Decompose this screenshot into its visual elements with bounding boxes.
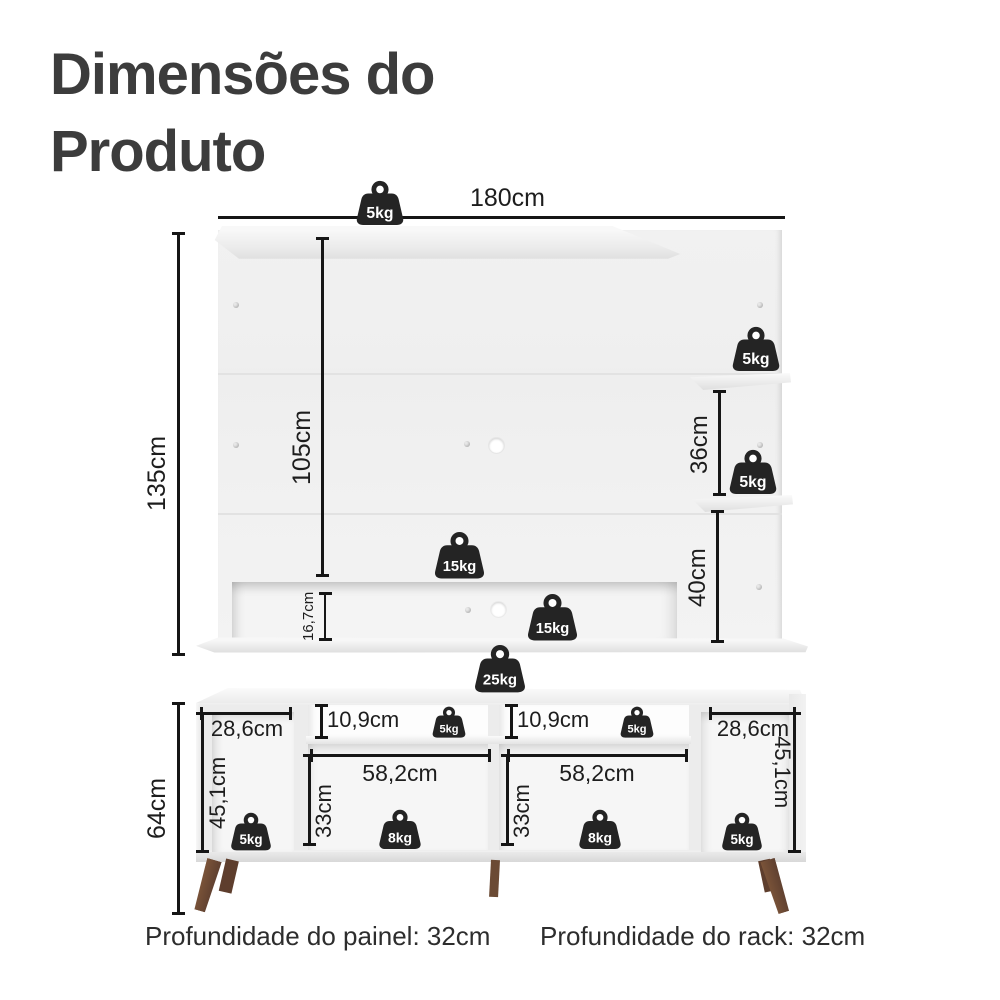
rack-top-niche-left-label: 10,9cm: [327, 707, 399, 733]
svg-text:5kg: 5kg: [739, 474, 766, 491]
screw-dot: [465, 607, 471, 613]
niche-height-dimension-line: [324, 592, 326, 641]
rack-right-width-dimension-line: [709, 712, 796, 715]
rack-main-right-height-label: 33cm: [509, 766, 535, 838]
svg-text:15kg: 15kg: [443, 559, 477, 575]
weight-badge-panel-niche-in: 15kg: [524, 593, 581, 642]
shelf-gap-label: 36cm: [686, 412, 714, 474]
weight-badge-rack-left: 5kg: [228, 812, 274, 852]
page-title-line2: Produto: [50, 113, 434, 190]
svg-text:5kg: 5kg: [730, 832, 753, 847]
panel-height-label: 135cm: [143, 393, 172, 511]
panel-depth-note: Profundidade do painel: 32cm: [145, 921, 490, 952]
panel-inner-height-dimension-line: [321, 237, 324, 577]
product-dimensions-infographic: Dimensões do Produto 180cm 135cm 105cm 3…: [0, 0, 1000, 1000]
weight-badge-rack-right: 5kg: [719, 812, 765, 852]
rack-leg-back-left: [219, 859, 239, 894]
weight-badge-rack-niche-left: 5kg: [430, 706, 468, 739]
rack-top-niche-right-label: 10,9cm: [517, 707, 589, 733]
weight-badge-shelf-lower: 5kg: [726, 449, 780, 496]
panel-open-niche: [232, 582, 677, 640]
screw-dot: [233, 442, 239, 448]
screw-dot: [233, 302, 239, 308]
shelf-gap-dimension-line: [718, 390, 721, 496]
rack-leg-front-left: [193, 858, 222, 913]
page-title-line1: Dimensões do: [50, 36, 434, 113]
svg-text:15kg: 15kg: [536, 621, 570, 637]
panel-width-dimension-line: [218, 216, 785, 219]
rack-top-niche-left-dimension-line: [320, 704, 323, 739]
cable-hole: [489, 438, 504, 453]
svg-text:25kg: 25kg: [483, 672, 517, 689]
weight-badge-rack-top: 25kg: [471, 644, 529, 694]
rack-left-width-dimension-line: [200, 712, 292, 715]
below-shelf-dimension-line: [716, 510, 719, 643]
rack-top-niche-right-dimension-line: [510, 704, 513, 739]
screw-dot: [757, 302, 763, 308]
niche-height-label: 16,7cm: [300, 594, 317, 641]
rack-bottom-edge: [196, 852, 806, 862]
weight-badge-shelf-upper: 5kg: [729, 326, 783, 373]
panel-inner-height-label: 105cm: [288, 370, 317, 485]
svg-text:8kg: 8kg: [388, 830, 412, 846]
svg-text:5kg: 5kg: [742, 351, 769, 368]
svg-text:5kg: 5kg: [627, 724, 646, 736]
rack-main-left-width-dimension-line: [310, 754, 491, 757]
panel-top-shelf: [205, 222, 690, 262]
weight-badge-panel-top: 5kg: [353, 180, 407, 227]
panel-seam: [218, 513, 782, 515]
weight-badge-rack-mid-left: 8kg: [376, 809, 424, 851]
screw-dot: [464, 441, 470, 447]
below-shelf-label: 40cm: [684, 543, 712, 607]
weight-badge-panel-niche-top: 15kg: [431, 531, 488, 580]
weight-badge-rack-niche-right: 5kg: [618, 706, 656, 739]
cable-hole: [491, 602, 506, 617]
screw-dot: [757, 442, 763, 448]
rack-depth-note: Profundidade do rack: 32cm: [540, 921, 865, 952]
rack-height-dimension-line: [177, 702, 180, 915]
rack-leg-back-middle: [489, 860, 500, 897]
rack-height-label: 64cm: [143, 775, 172, 839]
svg-text:5kg: 5kg: [439, 724, 458, 736]
svg-text:8kg: 8kg: [588, 830, 612, 846]
rack-main-right-width-dimension-line: [507, 754, 688, 757]
panel-width-label: 180cm: [455, 184, 560, 213]
rack-right-height-label: 45,1cm: [769, 736, 795, 829]
svg-text:5kg: 5kg: [239, 832, 262, 847]
rack-main-left-height-label: 33cm: [311, 766, 337, 838]
weight-badge-rack-mid-right: 8kg: [576, 809, 624, 851]
rack-main-left-width-label: 58,2cm: [330, 760, 470, 787]
screw-dot: [756, 584, 762, 590]
page-title: Dimensões do Produto: [50, 36, 434, 190]
panel-height-dimension-line: [177, 232, 180, 656]
rack-main-right-width-label: 58,2cm: [527, 760, 667, 787]
svg-text:5kg: 5kg: [366, 205, 393, 222]
